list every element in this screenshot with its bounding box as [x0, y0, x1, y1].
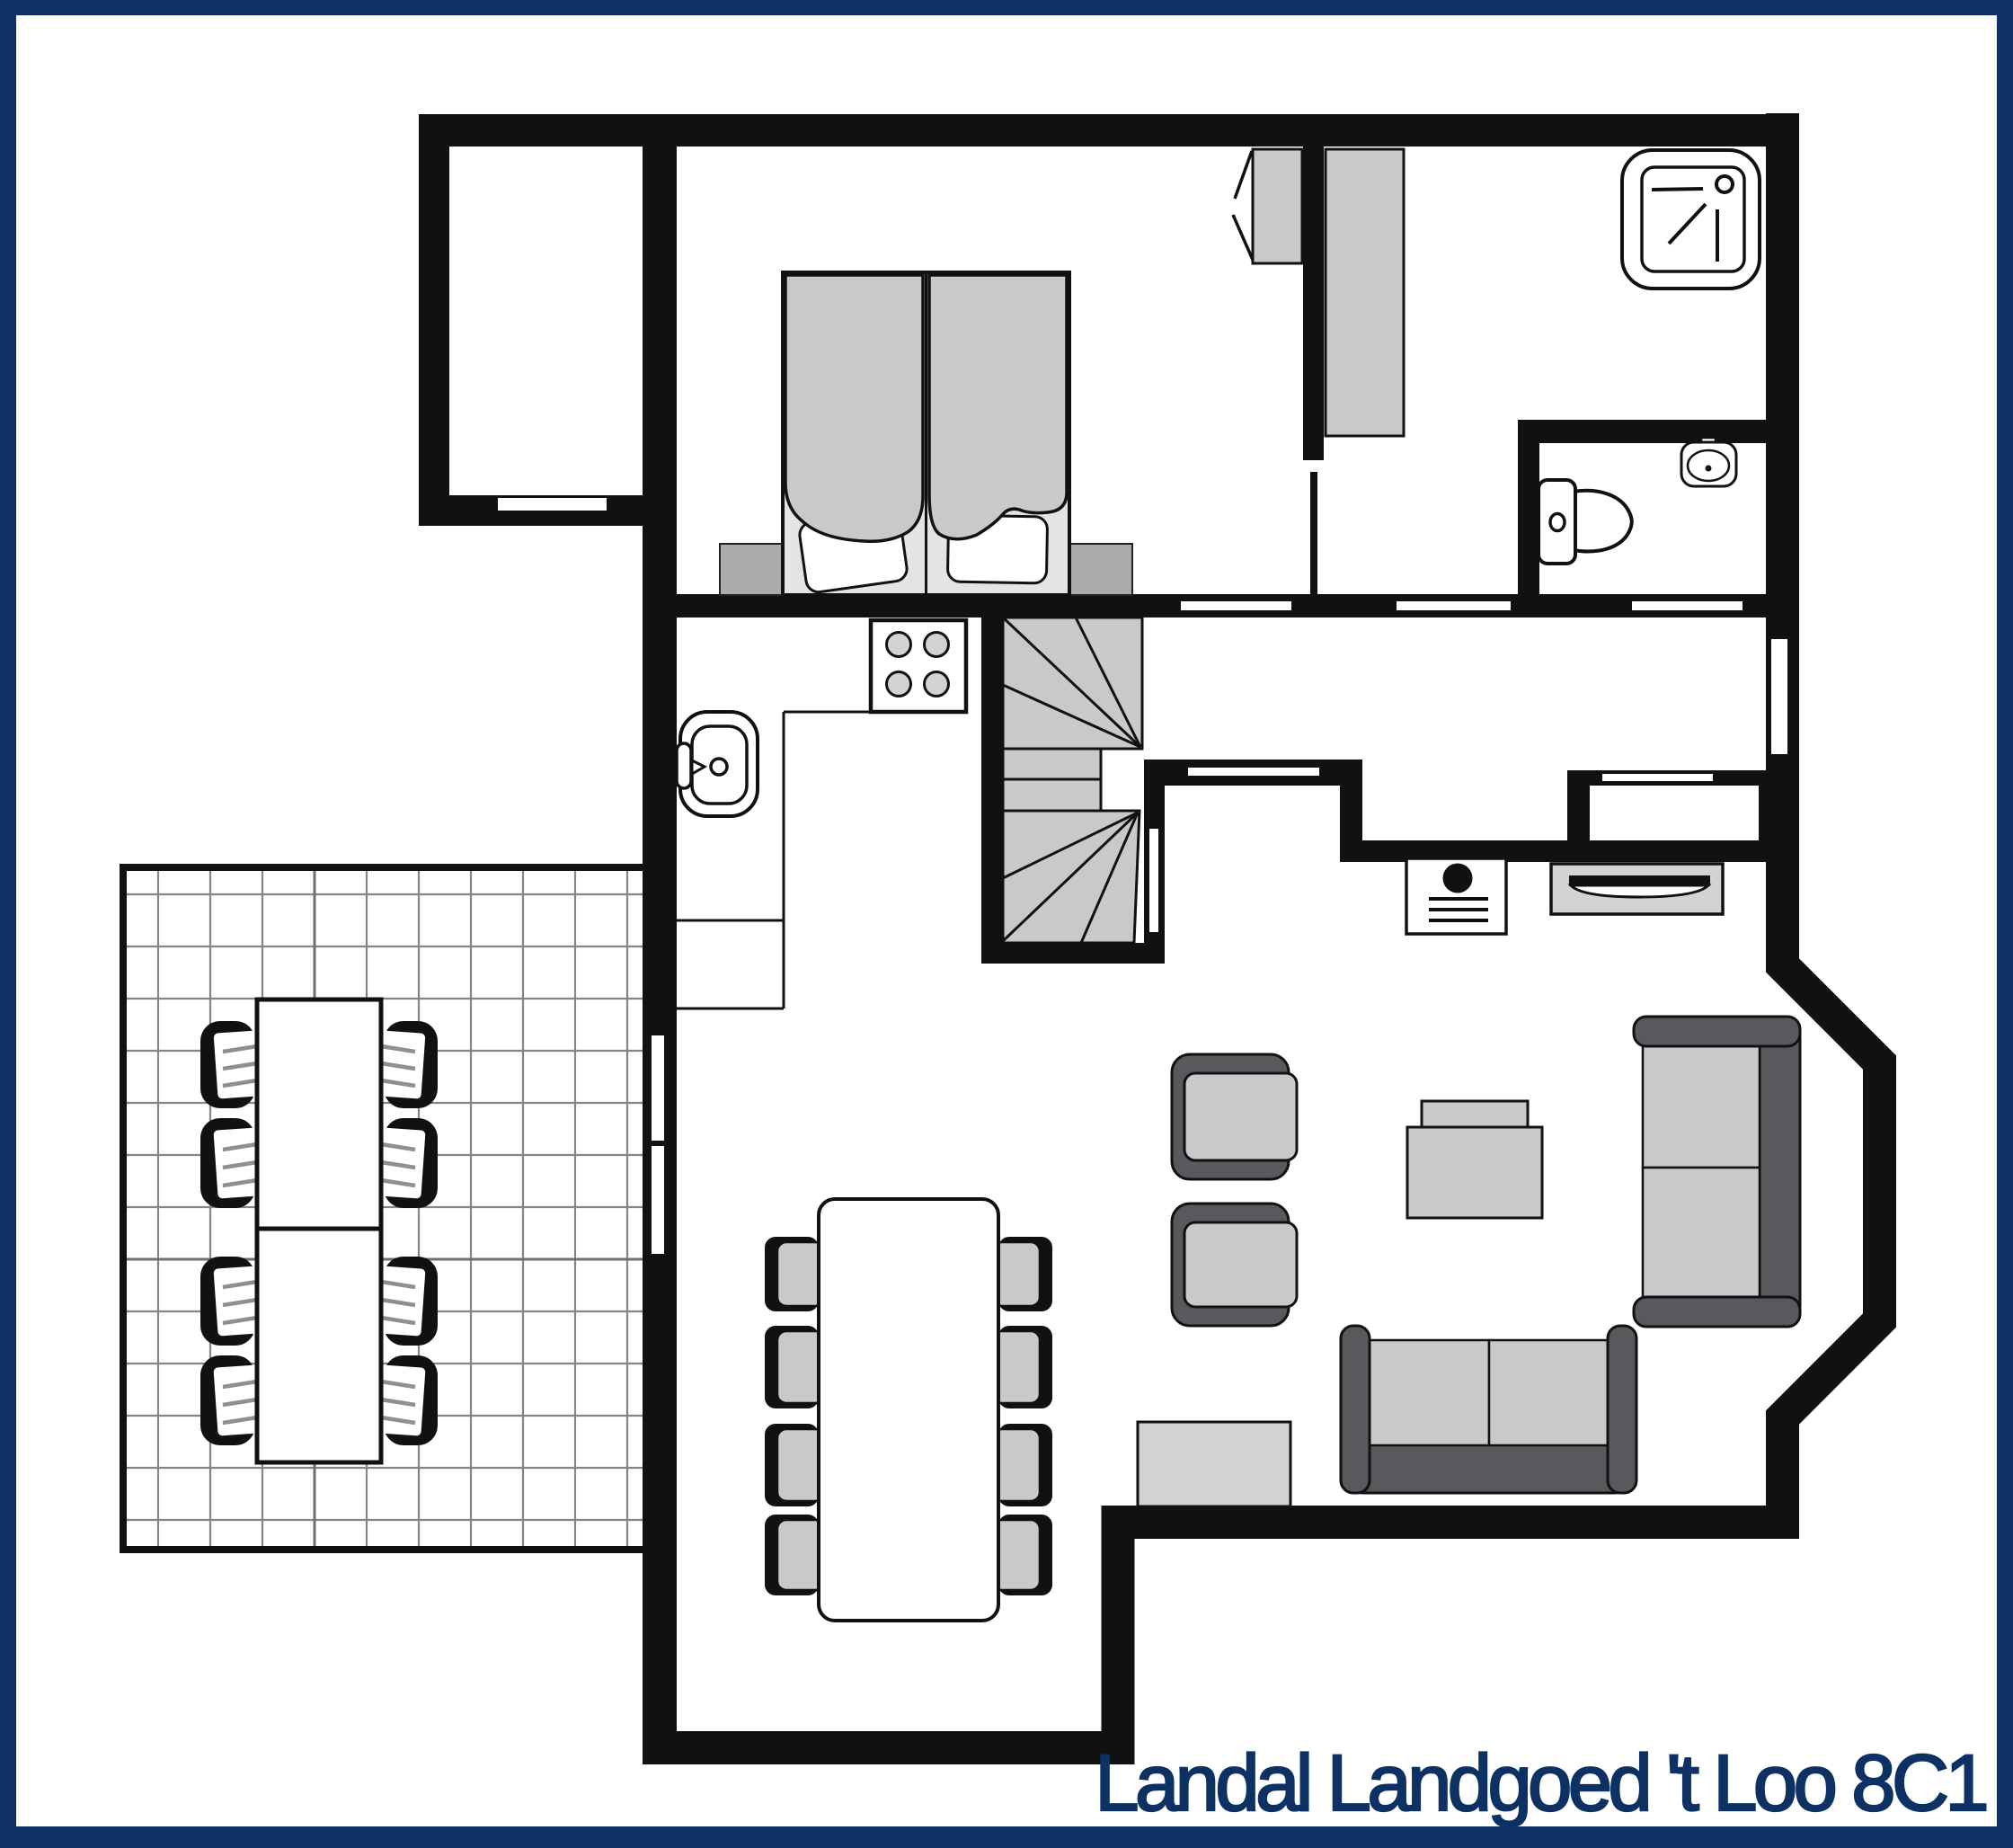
svg-text:Landal Landgoed 't Loo 8C1: Landal Landgoed 't Loo 8C1 [1095, 1737, 1986, 1827]
